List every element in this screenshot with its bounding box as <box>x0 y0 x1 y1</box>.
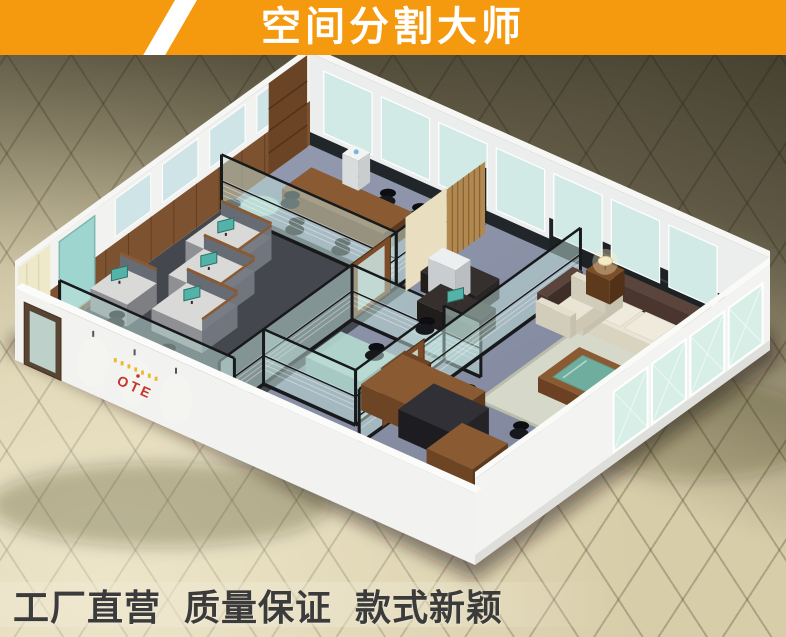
slogan-text: 工厂直营 质量保证 款式新颖 <box>13 579 503 631</box>
top-banner: 空间分割大师 <box>0 0 786 55</box>
banner-title: 空间分割大师 <box>0 0 786 55</box>
bottom-slogan-band: 工厂直营 质量保证 款式新颖 <box>0 582 786 627</box>
tile-floor <box>0 0 786 637</box>
poster: OTE 空间分割大师 工厂直营 质量保证 款式新颖 <box>0 0 786 637</box>
